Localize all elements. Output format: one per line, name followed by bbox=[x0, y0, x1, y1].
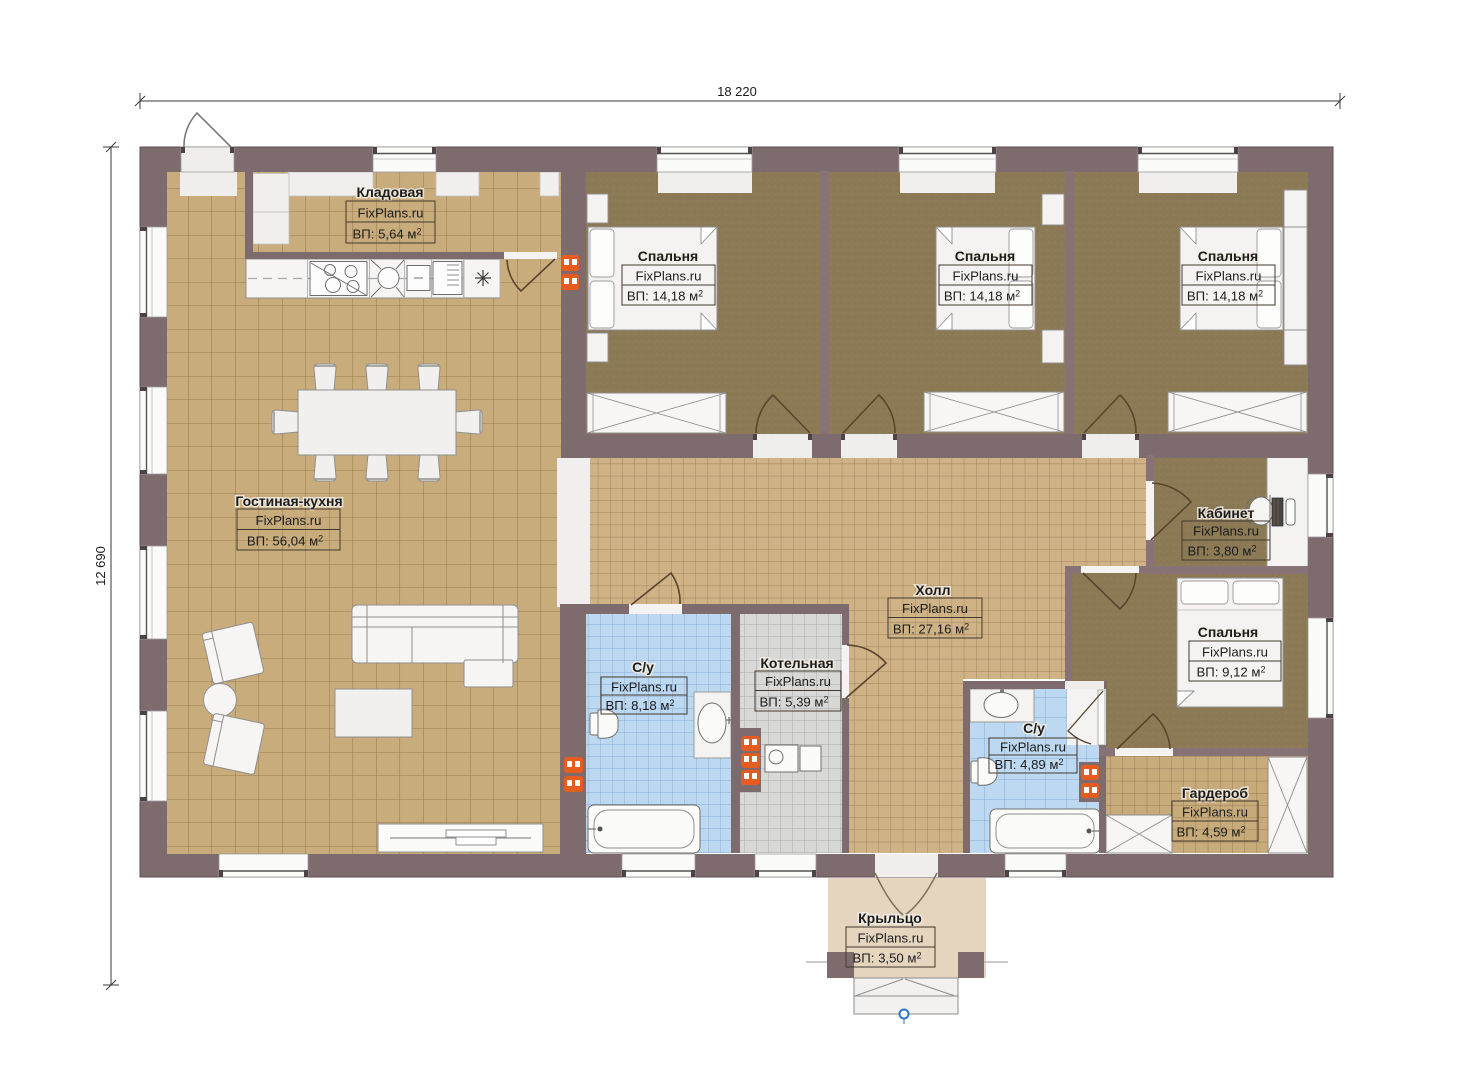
svg-text:FixPlans.ru: FixPlans.ru bbox=[1196, 269, 1262, 284]
svg-text:Спальня: Спальня bbox=[1198, 248, 1258, 264]
svg-text:FixPlans.ru: FixPlans.ru bbox=[765, 674, 831, 689]
svg-text:12 690: 12 690 bbox=[93, 546, 108, 586]
svg-text:Холл: Холл bbox=[915, 582, 950, 598]
svg-text:ВП: 3,80 м2: ВП: 3,80 м2 bbox=[1187, 544, 1256, 559]
svg-text:Спальня: Спальня bbox=[1198, 624, 1258, 640]
svg-text:Кабинет: Кабинет bbox=[1198, 505, 1255, 521]
svg-text:ВП: 56,04 м2: ВП: 56,04 м2 bbox=[247, 534, 323, 549]
svg-text:FixPlans.ru: FixPlans.ru bbox=[1202, 645, 1268, 660]
svg-text:18 220: 18 220 bbox=[717, 84, 757, 99]
svg-text:FixPlans.ru: FixPlans.ru bbox=[1193, 524, 1259, 539]
svg-text:FixPlans.ru: FixPlans.ru bbox=[953, 269, 1019, 284]
svg-text:Гардероб: Гардероб bbox=[1182, 785, 1249, 801]
svg-text:ВП: 4,59 м2: ВП: 4,59 м2 bbox=[1176, 825, 1245, 840]
svg-text:Крыльцо: Крыльцо bbox=[858, 910, 922, 926]
svg-text:FixPlans.ru: FixPlans.ru bbox=[1182, 805, 1248, 820]
svg-text:ВП: 3,50 м2: ВП: 3,50 м2 bbox=[852, 951, 921, 966]
svg-text:FixPlans.ru: FixPlans.ru bbox=[1000, 740, 1066, 755]
svg-text:С/у: С/у bbox=[1023, 720, 1045, 736]
svg-text:Спальня: Спальня bbox=[638, 248, 698, 264]
svg-text:ВП: 27,16 м2: ВП: 27,16 м2 bbox=[893, 622, 969, 637]
svg-text:FixPlans.ru: FixPlans.ru bbox=[358, 206, 424, 221]
svg-text:Кладовая: Кладовая bbox=[356, 184, 423, 200]
svg-text:FixPlans.ru: FixPlans.ru bbox=[858, 931, 924, 946]
svg-text:Спальня: Спальня bbox=[955, 248, 1015, 264]
svg-text:ВП: 14,18 м2: ВП: 14,18 м2 bbox=[1187, 289, 1263, 304]
svg-text:Котельная: Котельная bbox=[760, 655, 833, 671]
svg-text:Гостиная-кухня: Гостиная-кухня bbox=[235, 493, 342, 509]
svg-text:FixPlans.ru: FixPlans.ru bbox=[902, 601, 968, 616]
svg-text:ВП: 8,18 м2: ВП: 8,18 м2 bbox=[605, 698, 674, 713]
svg-text:FixPlans.ru: FixPlans.ru bbox=[611, 680, 677, 695]
svg-text:ВП: 4,89 м2: ВП: 4,89 м2 bbox=[994, 757, 1063, 772]
svg-text:ВП: 5,64 м2: ВП: 5,64 м2 bbox=[352, 227, 421, 242]
svg-text:ВП: 14,18 м2: ВП: 14,18 м2 bbox=[944, 289, 1020, 304]
svg-text:FixPlans.ru: FixPlans.ru bbox=[256, 513, 322, 528]
svg-text:ВП: 14,18 м2: ВП: 14,18 м2 bbox=[627, 289, 703, 304]
svg-text:FixPlans.ru: FixPlans.ru bbox=[636, 269, 702, 284]
svg-text:С/у: С/у bbox=[632, 659, 654, 675]
svg-text:ВП: 5,39 м2: ВП: 5,39 м2 bbox=[759, 695, 828, 710]
svg-text:ВП: 9,12 м2: ВП: 9,12 м2 bbox=[1196, 665, 1265, 680]
